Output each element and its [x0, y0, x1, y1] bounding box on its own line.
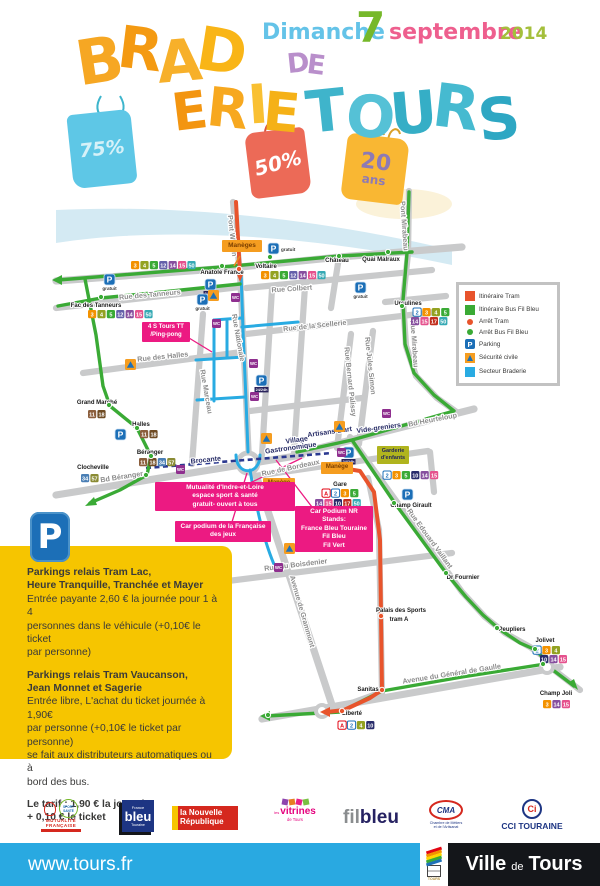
- ville-de-tours-banner: Ville de Tours: [448, 843, 600, 886]
- legend-label: Itinéraire Tram: [479, 293, 520, 300]
- braderie-zone-swatch: [465, 367, 475, 377]
- stop-label: Ursulines: [394, 301, 422, 307]
- partner-logos: SPORT SANTÉ MUTUALITÉ FRANÇAISE France b…: [0, 795, 600, 841]
- tram-stop-dot-icon: [467, 319, 473, 325]
- bag-50-label: 50%: [252, 145, 304, 181]
- cci-icon: Ci: [522, 799, 542, 819]
- street-label: Artisans d'art: [307, 426, 353, 439]
- bus-stop-dot: [494, 625, 499, 630]
- url-bar: www.tours.fr: [0, 843, 420, 886]
- de-label: de: [511, 861, 523, 873]
- line-badge-number: 14: [412, 319, 419, 325]
- line-badge-number: 14: [316, 501, 323, 507]
- mutualite-bar: [41, 829, 81, 832]
- line-badge-number: 10: [367, 723, 373, 729]
- line-badge-number: 3: [91, 312, 94, 318]
- nouvelle-republique-logo: la Nouvelle République: [170, 806, 240, 830]
- parking-caption: 24/24h: [256, 388, 269, 392]
- bus-stop-dot-icon: [467, 329, 473, 335]
- line-badge-number: 14: [550, 657, 557, 663]
- line-badge-number: 3: [395, 473, 398, 479]
- mutualite-emblem-icon: [44, 802, 56, 816]
- stop-label: Clocheville: [77, 465, 109, 471]
- parking-caption: gratuit: [281, 247, 296, 252]
- line-badge-number: 3: [425, 310, 428, 316]
- parking-relais-title-2: Parkings relais Tram Vaucanson, Jean Mon…: [27, 669, 218, 696]
- line-badge-number: 14: [553, 702, 560, 708]
- bus-stop-dot: [443, 570, 448, 575]
- legend-label: Parking: [479, 341, 500, 348]
- line-badge-number: 14: [422, 473, 429, 479]
- line-badge-number: 5: [152, 263, 155, 269]
- legend-label: Secteur Braderie: [479, 368, 526, 375]
- line-badge-number: 57: [91, 476, 97, 482]
- line-badge-number: 11: [141, 432, 147, 438]
- line-badge-number: 10: [335, 501, 341, 507]
- tours-building-icon: [427, 865, 441, 877]
- tram-stop-dot: [379, 687, 384, 692]
- parking-icon: P: [465, 339, 475, 349]
- tours-logo: TOURS: [420, 843, 448, 886]
- braderie-zone-route: [196, 272, 298, 569]
- line-badge-number: A: [324, 491, 328, 497]
- stop-label: Dr Fournier: [447, 575, 480, 581]
- stop-label: Sanitas: [357, 687, 379, 693]
- street-label: Avenue de Grammont: [288, 574, 317, 649]
- line-badge-number: 34: [82, 476, 89, 482]
- line-badge-number: 3: [343, 491, 346, 497]
- stop-label: Liberté: [342, 711, 363, 717]
- line-badge-number: 12: [117, 312, 123, 318]
- france-bleu-main: bleu: [125, 810, 152, 823]
- stop-label: Jolivet: [535, 638, 554, 644]
- parking-relais-body-2: Entrée libre, L'achat du ticket journée …: [27, 695, 218, 789]
- line-badge-number: 14: [127, 312, 134, 318]
- tram-stop-dot: [378, 613, 383, 618]
- cci-label: CCI TOURAINE: [501, 821, 562, 831]
- parking-letter: P: [208, 280, 214, 290]
- parking-letter: P: [107, 275, 113, 285]
- parking-letter: P: [118, 430, 124, 440]
- line-badge-number: 15: [309, 273, 315, 279]
- bus-stop-dot: [267, 254, 272, 259]
- line-badge-number: 50: [354, 501, 360, 507]
- line-badge-number: 17: [431, 319, 437, 325]
- street-label: Bd Heurteloup: [407, 410, 458, 428]
- parking-letter: P: [271, 244, 277, 254]
- bus-stop-dot: [106, 402, 111, 407]
- line-badge-number: 2: [334, 491, 337, 497]
- tours-logo-label: TOURS: [428, 877, 440, 881]
- bus-stop-dot: [98, 294, 103, 299]
- parking-info-box: Parkings relais Tram Lac, Heure Tranquil…: [0, 546, 232, 759]
- line-badge-number: 15: [431, 473, 437, 479]
- vitrines-square: [302, 799, 309, 806]
- legend-label: Sécurité civile: [479, 354, 518, 361]
- bottom-bar: www.tours.fr TOURS Ville de Tours: [0, 843, 600, 886]
- line-badge-number: 5: [404, 473, 407, 479]
- filbleu-fil: fil: [343, 807, 360, 829]
- legend-label: Itinéraire Bus Fil Bleu: [479, 306, 539, 313]
- parking-letter: P: [358, 283, 364, 293]
- line-badge-number: 12: [160, 263, 166, 269]
- line-badge-number: 5: [282, 273, 285, 279]
- filbleu-logo: fil bleu: [340, 807, 402, 829]
- parking-letter: P: [200, 295, 206, 305]
- line-badge-number: 3: [134, 263, 137, 269]
- wc-letter: WC: [338, 450, 345, 455]
- vitrines-sub: de Tours: [287, 817, 303, 822]
- line-badge-number: 14: [170, 263, 177, 269]
- vitrines-square: [281, 799, 288, 806]
- wc-letter: WC: [250, 361, 257, 366]
- line-badge-number: A: [340, 723, 344, 729]
- line-badge-number: 15: [179, 263, 185, 269]
- street-label: Rue de la Scellerie: [283, 318, 347, 334]
- wc-letter: WC: [383, 411, 390, 416]
- map-legend: Itinéraire Tram Itinéraire Bus Fil Bleu …: [456, 282, 560, 386]
- stop-label: Champ Joli: [540, 691, 573, 697]
- stop-label: Quai Malraux: [362, 257, 400, 263]
- vitrines-de-tours-logo: les vitrines de Tours: [264, 799, 326, 822]
- line-badge-number: 17: [344, 501, 350, 507]
- line-badge-number: 5: [109, 312, 112, 318]
- bus-stop-dot: [391, 500, 396, 505]
- parking-caption: gratuit: [102, 286, 117, 291]
- parking-letter: P: [259, 376, 265, 386]
- parking-caption: gratuit: [353, 294, 368, 299]
- stop-label: Voltaire: [255, 264, 277, 270]
- line-badge-number: 18: [98, 412, 104, 418]
- parking-icon-large: P: [30, 512, 70, 562]
- line-badge-number: 5: [353, 491, 356, 497]
- mutualite-francaise-logo: SPORT SANTÉ MUTUALITÉ FRANÇAISE: [18, 799, 104, 832]
- mutualite-label-2: FRANÇAISE: [46, 823, 76, 828]
- line-badge-number: 57: [168, 460, 174, 466]
- vitrines-main: vitrines: [280, 806, 316, 817]
- line-badge-number: 11: [89, 412, 95, 418]
- line-badge-number: 15: [136, 312, 142, 318]
- stop-label: Palais des Sports: [376, 608, 427, 614]
- wc-letter: WC: [213, 321, 220, 326]
- bus-stop-dot: [399, 303, 404, 308]
- france-bleu-logo: France bleu Touraine: [118, 800, 158, 832]
- line-badge-number: 2: [350, 723, 353, 729]
- bus-stop-dot: [532, 646, 537, 651]
- parking-letter: P: [405, 490, 411, 500]
- bag-50: 50%: [244, 127, 312, 200]
- bus-stop-dot: [385, 249, 390, 254]
- line-badge-number: 5: [444, 310, 447, 316]
- bus-stop-dot: [134, 425, 139, 430]
- wc-letter: WC: [251, 394, 258, 399]
- bus-route-swatch: [465, 305, 475, 315]
- vitrines-square: [295, 798, 302, 805]
- filbleu-bleu: bleu: [360, 807, 399, 829]
- wc-letter: WC: [177, 467, 184, 472]
- bus-stop-dot: [265, 712, 270, 717]
- stop-label: tram A: [390, 617, 409, 623]
- vitrines-pre: les: [274, 810, 279, 815]
- line-badge-number: 18: [150, 432, 156, 438]
- website-link[interactable]: www.tours.fr: [28, 854, 133, 876]
- france-bleu-sub: Touraine: [131, 823, 145, 827]
- wc-letter: WC: [275, 565, 282, 570]
- sport-sante-badge: SPORT SANTÉ: [59, 799, 78, 818]
- line-badge-number: 50: [440, 319, 446, 325]
- legend-label: Arrêt Bus Fil Bleu: [479, 329, 528, 336]
- line-badge-number: 3: [545, 648, 548, 654]
- line-badge-number: 11: [140, 460, 146, 466]
- nr-line2: République: [180, 818, 238, 827]
- bus-stop-dot: [148, 453, 153, 458]
- tram-stop-dot: [236, 266, 241, 271]
- line-badge-number: 12: [290, 273, 296, 279]
- bag-75-label: 75%: [78, 136, 126, 163]
- stop-label: Fac des Tanneurs: [71, 303, 122, 309]
- cma-logo: CMA Chambre de Métiers et de l'Artisanat: [418, 800, 474, 830]
- bus-stop-dot: [336, 253, 341, 258]
- cma-sub: Chambre de Métiers et de l'Artisanat: [430, 821, 463, 830]
- line-badge-number: 34: [159, 460, 166, 466]
- line-badge-number: 50: [318, 273, 324, 279]
- line-badge-number: 15: [563, 702, 569, 708]
- tram-stop-dot: [339, 708, 344, 713]
- legend-label: Arrêt Tram: [479, 318, 509, 325]
- line-badge-number: 14: [300, 273, 307, 279]
- line-badge-number: 15: [325, 501, 331, 507]
- parking-relais-body-1: Entrée payante 2,60 € la journée pour 1 …: [27, 593, 218, 660]
- stop-label: Gare: [333, 482, 347, 488]
- bus-stop-dot: [219, 263, 224, 268]
- parking-caption: 24/24h: [343, 460, 356, 464]
- securite-civile-icon: [465, 353, 475, 363]
- cci-touraine-logo: Ci CCI TOURAINE: [492, 799, 572, 831]
- line-badge-number: 3: [264, 273, 267, 279]
- stop-label: Peupliers: [498, 627, 526, 633]
- stop-label: Château: [325, 258, 349, 264]
- bag-ans-label: ans: [361, 173, 386, 188]
- cma-oval: CMA: [429, 800, 463, 820]
- tours-label: Tours: [528, 853, 582, 876]
- parking-caption: gratuit: [195, 306, 210, 311]
- line-badge-number: 2: [416, 310, 419, 316]
- street-label: Rue Marceau: [198, 369, 215, 415]
- vitrines-square: [288, 799, 295, 806]
- ville-label: Ville: [465, 853, 506, 876]
- line-badge-number: 50: [188, 263, 194, 269]
- line-badge-number: 3: [546, 702, 549, 708]
- street-label: Rue Edouard Vaillant: [405, 507, 455, 571]
- line-badge-number: 15: [560, 657, 566, 663]
- bag-20ans: 20 ans: [340, 132, 410, 205]
- wc-letter: WC: [232, 295, 239, 300]
- line-badge-number: 10: [412, 473, 418, 479]
- parking-relais-title-1: Parkings relais Tram Lac, Heure Tranquil…: [27, 566, 218, 593]
- line-badge-number: 15: [421, 319, 427, 325]
- bus-stop-dot: [540, 661, 545, 666]
- parking-letter: P: [346, 448, 352, 458]
- line-badge-number: 50: [145, 312, 151, 318]
- bus-stop-dot: [143, 472, 148, 477]
- line-badge-number: 2: [386, 473, 389, 479]
- wc-letter: WC: [276, 496, 283, 501]
- bag-75: 75%: [66, 109, 137, 189]
- line-badge-number: 18: [149, 460, 155, 466]
- tram-route-swatch: [465, 291, 475, 301]
